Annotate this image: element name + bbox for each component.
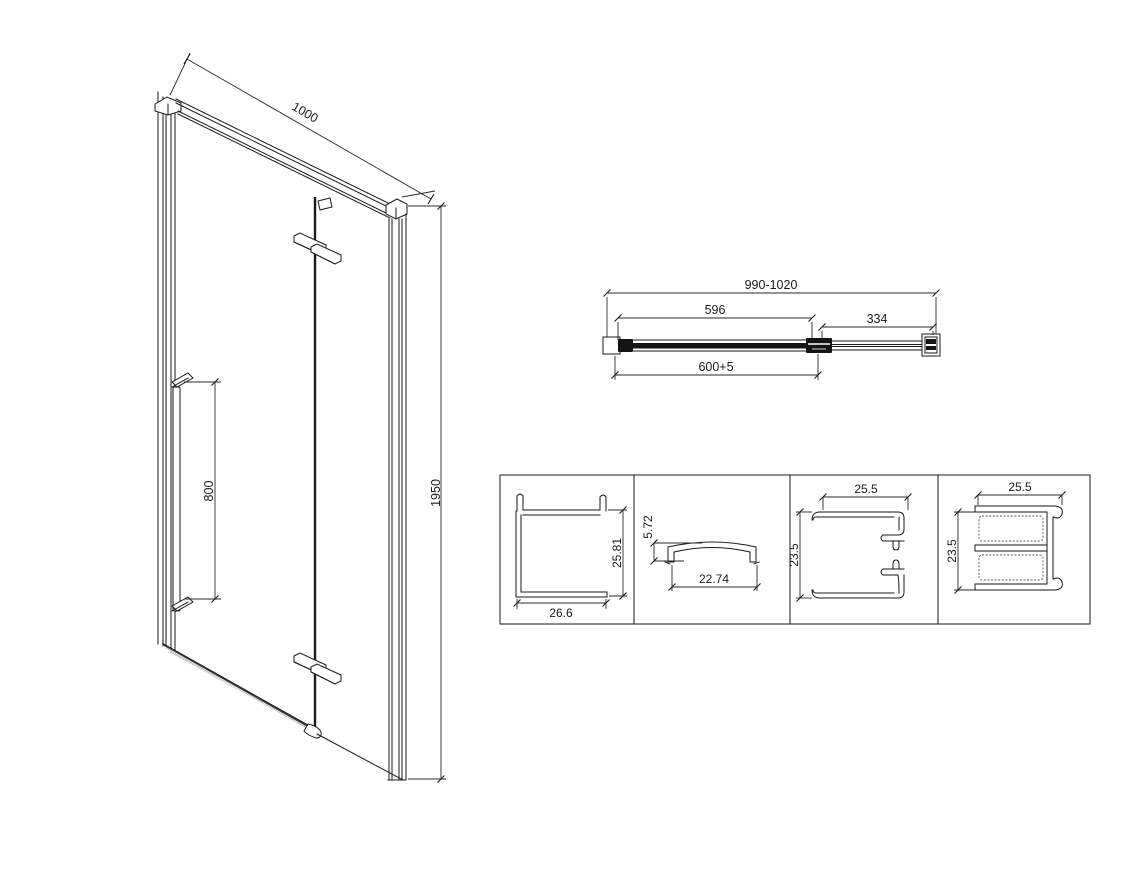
dim-label-25-5-door: 25.5	[854, 482, 878, 496]
dim-label-5-72: 5.72	[641, 515, 655, 539]
profile-panel-clamp: 25.5 23.5	[945, 480, 1066, 594]
header-bar	[176, 99, 407, 219]
dim-overall-range: 990-1020	[604, 278, 940, 337]
dim-panel-profile-width: 25.5	[975, 480, 1066, 505]
dim-label-25-81: 25.81	[610, 538, 624, 568]
dim-label-23-5-panel: 23.5	[945, 539, 959, 563]
hinge-top	[294, 233, 341, 264]
profile-wall-channel: 26.6 25.81	[514, 494, 628, 620]
dim-panel-profile-height: 23.5	[945, 509, 975, 594]
profile-door-clamp: 25.5 23.5	[787, 482, 912, 602]
dim-label-26-6: 26.6	[549, 606, 573, 620]
dim-label-990-1020: 990-1020	[745, 278, 798, 292]
door-glass-panel	[162, 197, 403, 780]
shower-door-drawing: 1000 800 1950	[0, 0, 1141, 881]
hinge-bottom	[294, 653, 341, 684]
dim-total-height: 1950	[408, 203, 446, 783]
dim-label-596: 596	[705, 303, 726, 317]
dim-door-width: 1000	[170, 53, 435, 204]
dim-handle-height: 800	[184, 379, 221, 603]
dim-fixed-panel: 334	[819, 312, 937, 340]
dim-door-profile-height: 23.5	[787, 509, 812, 602]
plan-door-glass-bar	[618, 339, 812, 352]
dim-door-profile-width: 25.5	[820, 482, 912, 510]
dim-label-1000: 1000	[289, 100, 320, 126]
floor-line	[317, 734, 403, 780]
dim-adjustment: 600+5	[612, 354, 822, 380]
dim-label-800: 800	[202, 481, 216, 502]
dim-label-1950: 1950	[429, 479, 443, 507]
dim-wall-height: 25.81	[608, 507, 627, 600]
dim-cap-width: 22.74	[669, 565, 761, 591]
dim-label-334: 334	[867, 312, 888, 326]
plan-hinge-block	[806, 338, 832, 353]
fixed-panel-profile	[388, 214, 406, 780]
door-handle	[172, 373, 193, 611]
dim-label-25-5-panel: 25.5	[1008, 480, 1032, 494]
plan-right-wall-bracket	[922, 334, 940, 356]
plan-left-wall-bracket	[603, 337, 620, 354]
dim-label-23-5-door: 23.5	[787, 543, 801, 567]
dim-door-glass: 596	[615, 303, 816, 340]
plan-fixed-panel	[826, 341, 924, 350]
profile-cover-cap: 5.72 22.74	[641, 515, 761, 591]
dim-wall-width: 26.6	[514, 599, 610, 620]
dim-label-600-5: 600+5	[698, 360, 733, 374]
dim-cap-height: 5.72	[641, 515, 702, 565]
header-stub	[318, 198, 332, 210]
plan-view: 990-1020 596 334 600+5	[603, 278, 940, 380]
isometric-view: 1000 800 1950	[155, 53, 446, 783]
dim-label-22-74: 22.74	[699, 572, 729, 586]
profile-details: 26.6 25.81	[500, 475, 1090, 624]
technical-drawing-sheet: 1000 800 1950	[0, 0, 1141, 881]
